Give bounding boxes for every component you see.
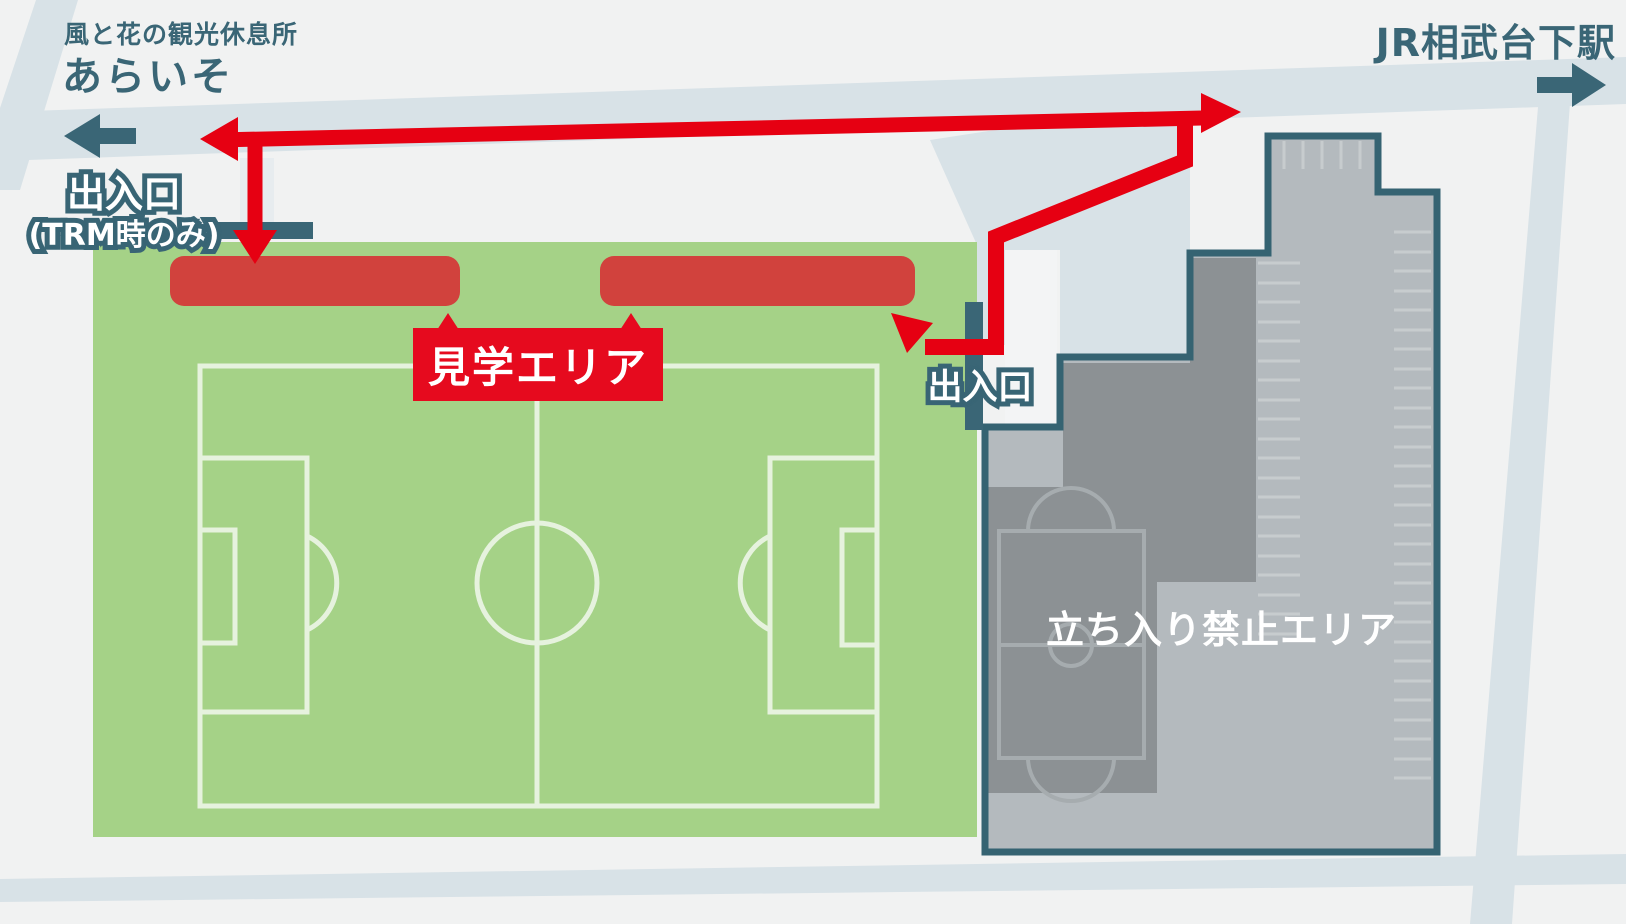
trm-entrance-title: 出入口 出入口 [0, 174, 248, 216]
field-gate-bar [965, 302, 983, 430]
viewing-area-label: 見学エリア [413, 328, 663, 401]
trm-entrance-note: (TRM時のみ) (TRM時のみ) [0, 219, 248, 252]
viewing-stand-east [600, 256, 915, 306]
station-label: JR相武台下駅 [1276, 12, 1616, 67]
facility-guide-map: 風と花の観光休息所 あらいそ JR相武台下駅 出入口 出入口 (TRM時のみ) … [0, 0, 1626, 924]
viewing-stand-west [170, 256, 460, 306]
field-entrance-label: 出入口 出入口 [849, 369, 1111, 408]
restricted-area-label: 立ち入り禁止エリア [1046, 599, 1394, 654]
rest-area-name: あらいそ [62, 44, 234, 102]
map-graphics [0, 0, 1626, 924]
trm-entrance-label: 出入口 出入口 (TRM時のみ) (TRM時のみ) [0, 174, 248, 252]
